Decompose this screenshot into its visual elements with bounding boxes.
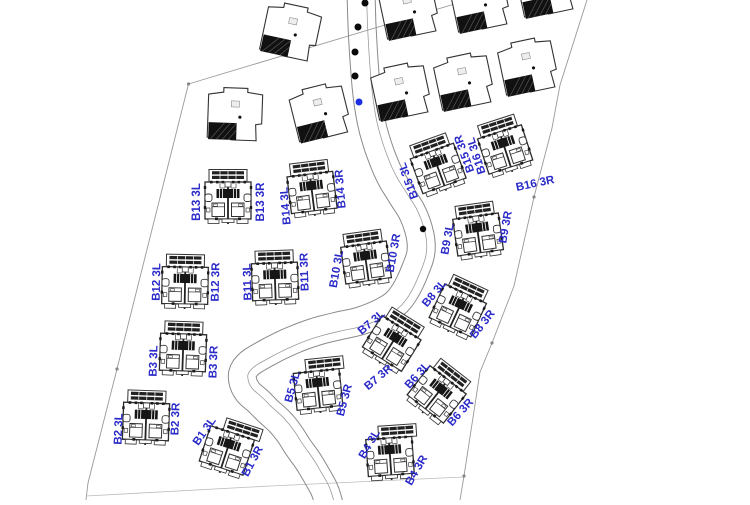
svg-text:B3 3R: B3 3R — [207, 345, 220, 379]
svg-text:B11 3R: B11 3R — [298, 252, 311, 291]
svg-text:B13 3R: B13 3R — [255, 182, 267, 222]
svg-text:B2 3L: B2 3L — [112, 413, 125, 445]
svg-text:B2 3R: B2 3R — [169, 402, 182, 436]
svg-text:B11 3L: B11 3L — [241, 263, 254, 300]
svg-text:B12 3L: B12 3L — [151, 263, 164, 301]
svg-text:B13 3L: B13 3L — [191, 183, 203, 221]
svg-text:B12 3R: B12 3R — [210, 262, 223, 302]
svg-text:B3 3L: B3 3L — [147, 345, 160, 377]
